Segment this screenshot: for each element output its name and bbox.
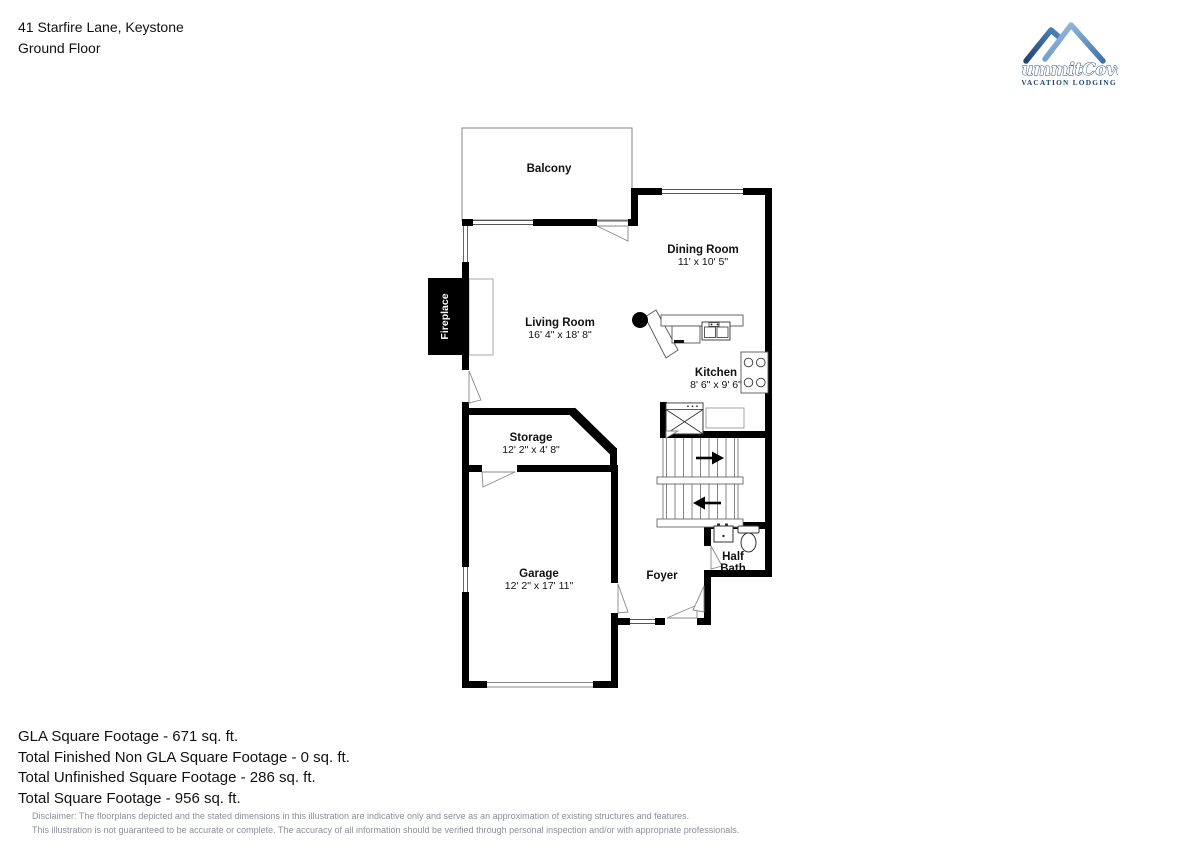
fireplace-label: Fireplace [439,293,451,339]
garage-foyer-door-swing [618,584,628,613]
toilet [738,526,759,552]
room-dims-kitchen: 8' 6" x 9' 6" [690,379,742,391]
support-post [632,312,648,328]
room-dims-garage: 12' 2" x 17' 11" [505,580,574,592]
foyer-side-door-swing [693,586,704,612]
disclaimer: Disclaimer: The floorplans depicted and … [32,809,739,837]
room-label-balcony: Balcony [527,163,572,175]
floor-plan: Fireplace Balcony Dining Room 11' x 10' … [0,0,1200,849]
stairs-down-arrow-icon [693,497,721,510]
disclaimer-line-2: This illustration is not guaranteed to b… [32,823,739,837]
room-label-foyer: Foyer [646,570,678,582]
balcony-door-swing [597,226,628,241]
half-bath-sink [714,524,733,543]
room-label-half-bath-1: Half [722,551,744,563]
page: { "header": { "address": "41 Starfire La… [0,0,1200,849]
room-dims-living: 16' 4" x 18' 8" [528,329,592,341]
garage-door [487,683,593,688]
room-label-living: Living Room [525,317,595,329]
room-dims-dining: 11' x 10' 5" [678,256,728,268]
room-label-dining: Dining Room [667,244,739,256]
square-footage-summary: GLA Square Footage - 671 sq. ft. Total F… [18,727,350,809]
kitchen-sink [702,322,730,340]
stove [741,352,768,393]
hearth-outline [469,279,493,355]
fireplace: Fireplace [428,278,462,355]
unfinished-footage: Total Unfinished Square Footage - 286 sq… [18,768,350,789]
gla-footage: GLA Square Footage - 671 sq. ft. [18,727,350,748]
total-footage: Total Square Footage - 956 sq. ft. [18,789,350,810]
stair-landing-upper [657,477,743,484]
living-room-door-swing [469,371,481,403]
closet-outline [706,408,744,428]
non-gla-footage: Total Finished Non GLA Square Footage - … [18,748,350,769]
room-label-storage: Storage [510,432,553,444]
front-door-swing [667,605,697,618]
room-label-half-bath-2: Bath [720,563,746,575]
disclaimer-line-1: Disclaimer: The floorplans depicted and … [32,809,739,823]
room-label-garage: Garage [519,568,559,580]
washer-box [666,403,703,434]
staircase [657,438,743,527]
storage-door-swing [482,472,515,487]
room-label-kitchen: Kitchen [695,367,737,379]
room-dims-storage: 12' 2" x 4' 8" [502,444,560,456]
